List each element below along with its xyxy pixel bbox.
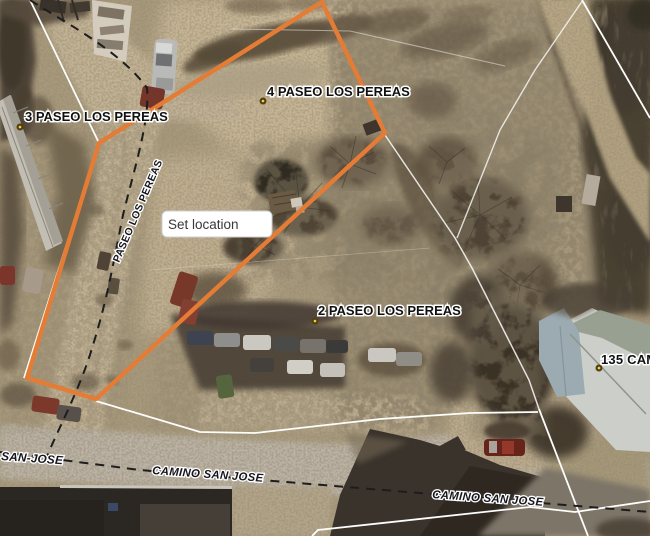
svg-text:4 PASEO LOS PEREAS: 4 PASEO LOS PEREAS [267, 84, 410, 99]
svg-text:Set location: Set location [168, 217, 239, 232]
svg-text:135 CAMINO: 135 CAMINO [601, 352, 650, 367]
svg-text:3 PASEO LOS PEREAS: 3 PASEO LOS PEREAS [25, 109, 168, 124]
svg-text:2 PASEO LOS PEREAS: 2 PASEO LOS PEREAS [318, 303, 461, 318]
